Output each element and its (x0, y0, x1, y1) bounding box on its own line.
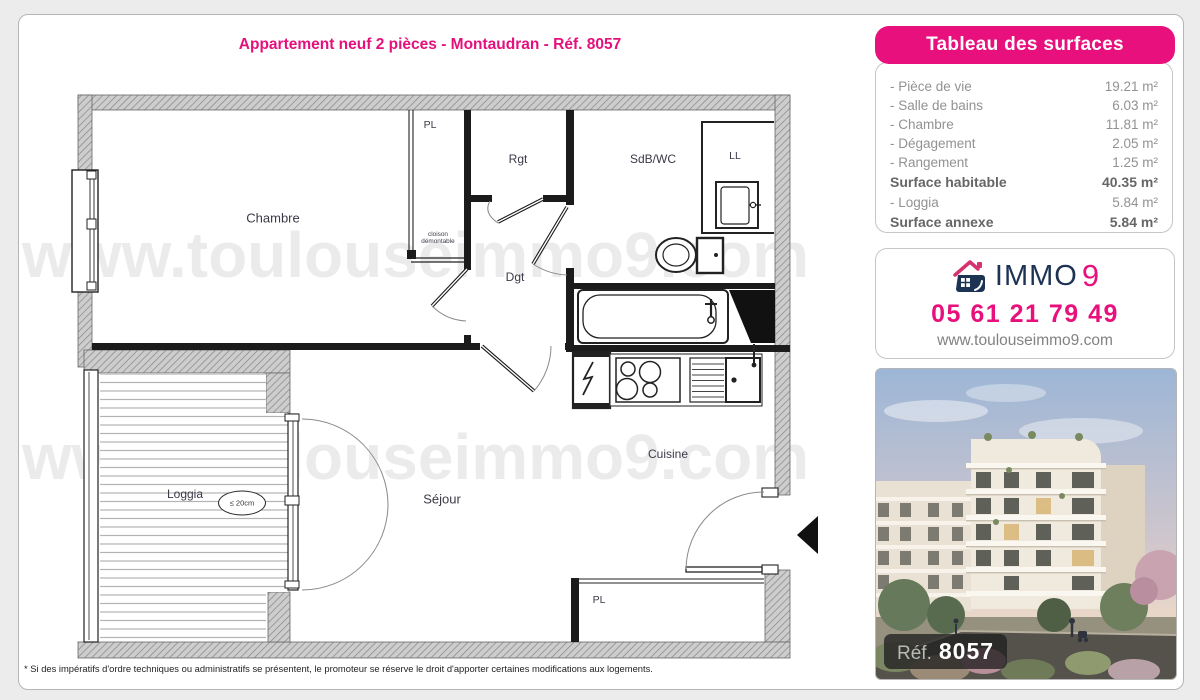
duct-shaft (729, 290, 775, 343)
room-label-loggia: Loggia (167, 487, 203, 501)
entrance-door (686, 488, 778, 574)
bathtub (578, 290, 728, 343)
surfaces-panel-header: Tableau des surfaces (875, 26, 1175, 64)
surface-row: - Loggia 5.84 m² (890, 193, 1158, 212)
kitchen-sink (690, 344, 760, 402)
ref-badge: Réf. 8057 (884, 634, 1007, 669)
brand-text: IMMO (995, 260, 1078, 293)
room-label-pl-top: PL (424, 119, 437, 131)
loggia-railing (84, 370, 98, 642)
threshold-note: ≤ 20cm (230, 499, 255, 508)
washbasin (716, 182, 761, 228)
surface-row-value: 19.21 m² (1105, 77, 1158, 96)
cooktop (616, 358, 680, 402)
surface-row-value: 1.25 m² (1112, 153, 1158, 172)
agency-logo: IMMO 9 (951, 258, 1099, 295)
surface-row-value: 40.35 m² (1102, 173, 1158, 192)
surface-row: - Rangement 1.25 m² (890, 153, 1158, 172)
partition-note-line1: cloison (421, 231, 454, 238)
brand-digit: 9 (1082, 258, 1099, 294)
surface-row-value: 5.84 m² (1110, 213, 1158, 232)
partition-note-line2: démontable (421, 238, 454, 245)
room-label-rgt: Rgt (509, 152, 528, 166)
threshold-badge: ≤ 20cm (218, 491, 266, 516)
agency-card: IMMO 9 05 61 21 79 49 www.toulouseimmo9.… (875, 248, 1175, 359)
room-label-sdb: SdB/WC (630, 152, 676, 166)
surface-row-label: - Pièce de vie (890, 77, 972, 96)
loggia-french-door (285, 414, 388, 590)
interior-doors (432, 199, 567, 391)
surface-row-value: 5.84 m² (1112, 193, 1158, 212)
room-label-chambre: Chambre (246, 211, 299, 226)
surface-row: - Chambre 11.81 m² (890, 115, 1158, 134)
surface-row-label: - Dégagement (890, 134, 976, 153)
surface-row-value: 11.81 m² (1106, 115, 1158, 134)
chambre-window (72, 170, 98, 292)
building-render (876, 369, 1176, 679)
room-label-sejour: Séjour (423, 492, 461, 507)
surface-row-value: 6.03 m² (1112, 96, 1158, 115)
building-photo: Réf. 8057 (875, 368, 1177, 680)
surface-row: - Salle de bains 6.03 m² (890, 96, 1158, 115)
disclaimer-text: * Si des impératifs d'ordre techniques o… (24, 663, 653, 674)
surface-row-label: Surface annexe (890, 213, 994, 232)
surface-row-value: 2.05 m² (1112, 134, 1158, 153)
partition-note: cloison démontable (421, 231, 454, 245)
surface-row: Surface habitable 40.35 m² (890, 173, 1158, 192)
surface-row-label: Surface habitable (890, 173, 1007, 192)
ref-badge-label: Réf. (897, 643, 932, 665)
surface-row: - Pièce de vie 19.21 m² (890, 77, 1158, 96)
room-label-ll: LL (729, 150, 741, 162)
room-label-cuisine: Cuisine (648, 447, 688, 461)
floor-plan: Chambre PL Rgt SdB/WC LL Dgt cloison dém… (70, 92, 823, 667)
surface-row: - Dégagement 2.05 m² (890, 134, 1158, 153)
floor-plan-drawing (70, 92, 823, 667)
electrical-panel (573, 352, 610, 408)
surface-row-label: - Chambre (890, 115, 954, 134)
ref-badge-value: 8057 (939, 638, 994, 665)
room-label-pl-bottom: PL (593, 594, 606, 606)
room-label-dgt: Dgt (506, 270, 525, 284)
agency-website: www.toulouseimmo9.com (937, 332, 1113, 350)
surface-row: Surface annexe 5.84 m² (890, 213, 1158, 232)
surface-row-label: - Rangement (890, 153, 968, 172)
page-title: Appartement neuf 2 pièces - Montaudran -… (60, 36, 800, 54)
entrance-arrow-icon (797, 516, 818, 554)
toilet (656, 238, 723, 273)
surface-row-label: - Loggia (890, 193, 939, 212)
surfaces-panel: - Pièce de vie 19.21 m² - Salle de bains… (875, 62, 1173, 233)
house-icon (951, 258, 991, 295)
agency-phone: 05 61 21 79 49 (931, 300, 1119, 329)
surface-row-label: - Salle de bains (890, 96, 983, 115)
